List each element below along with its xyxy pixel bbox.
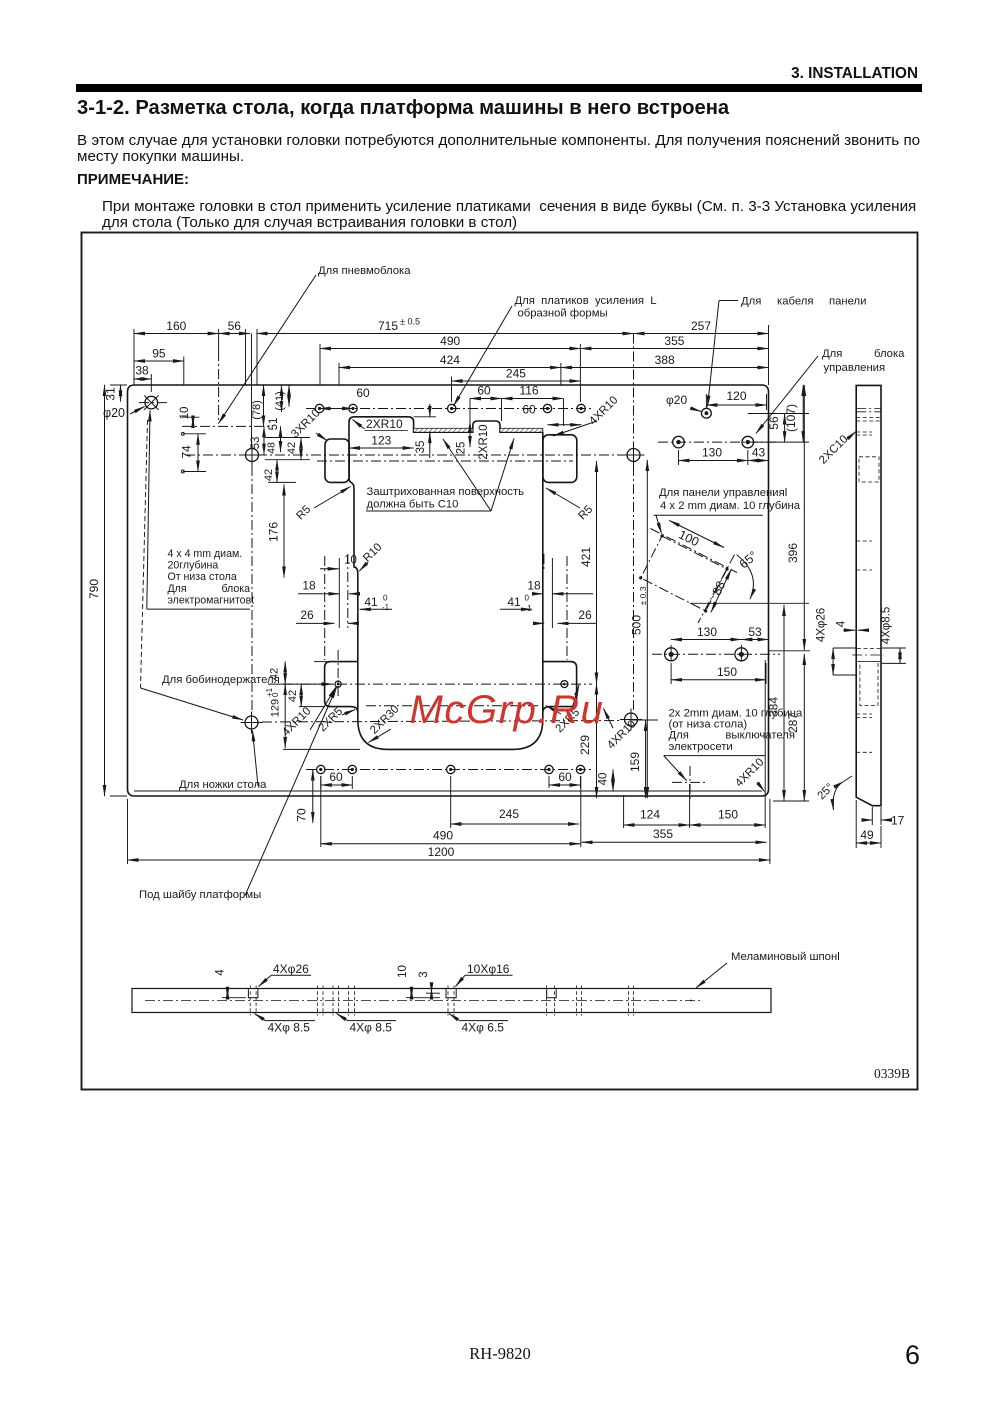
svg-text:электросети: электросети: [669, 741, 733, 753]
svg-text:электромагнитовt: электромагнитовt: [168, 594, 255, 606]
svg-text:123: 123: [371, 434, 391, 448]
svg-text:2XR10: 2XR10: [366, 417, 403, 431]
svg-text:42: 42: [263, 469, 275, 481]
svg-text:49: 49: [860, 828, 874, 842]
svg-text:129: 129: [270, 699, 282, 717]
svg-text:Для панели управленияl: Для панели управленияl: [659, 487, 787, 499]
svg-text:Для ножки стола: Для ножки стола: [179, 779, 267, 791]
svg-text:2XR5: 2XR5: [316, 705, 345, 734]
svg-text:355: 355: [653, 827, 673, 841]
svg-text:Для: Для: [822, 348, 842, 360]
svg-text:43: 43: [752, 446, 766, 460]
svg-text:± 0.3: ± 0.3: [638, 586, 648, 605]
svg-text:130: 130: [697, 625, 717, 639]
svg-text:0: 0: [383, 594, 388, 603]
svg-text:0: 0: [525, 594, 530, 603]
svg-text:355: 355: [664, 334, 684, 348]
svg-text:McGrp.Ru: McGrp.Ru: [409, 688, 604, 732]
svg-text:0: 0: [271, 692, 280, 697]
svg-text:Для платиков усиления L: Для платиков усиления L: [515, 295, 657, 307]
svg-text:4XR10: 4XR10: [733, 756, 766, 789]
svg-text:выключателя: выключателя: [725, 730, 795, 742]
svg-text:4Xφ8.5: 4Xφ8.5: [881, 607, 893, 645]
svg-text:4Xφ26: 4Xφ26: [816, 608, 828, 642]
svg-text:500: 500: [629, 615, 643, 635]
svg-text:60: 60: [329, 770, 343, 784]
svg-text:образной формы: образной формы: [518, 308, 608, 320]
svg-text:φ20: φ20: [666, 393, 687, 407]
svg-text:25: 25: [456, 442, 468, 455]
svg-text:(78): (78): [251, 400, 263, 420]
svg-text:245: 245: [499, 807, 519, 821]
svg-text:41: 41: [507, 595, 521, 609]
svg-text:100: 100: [676, 528, 701, 550]
svg-text:95: 95: [152, 347, 166, 361]
svg-text:Для: Для: [741, 296, 761, 308]
svg-text:287: 287: [786, 713, 800, 733]
svg-text:должна быть C10: должна быть C10: [367, 499, 459, 511]
svg-text:(107): (107): [784, 404, 798, 432]
svg-text:48: 48: [266, 442, 278, 454]
svg-text:35: 35: [415, 441, 427, 454]
svg-text:229: 229: [578, 735, 592, 755]
svg-text:10Xφ16: 10Xφ16: [467, 962, 510, 976]
svg-text:4Xφ 6.5: 4Xφ 6.5: [462, 1021, 505, 1035]
svg-text:φ20: φ20: [103, 406, 125, 420]
svg-text:53: 53: [748, 625, 762, 639]
svg-text:41: 41: [364, 595, 378, 609]
svg-text:Для: Для: [669, 730, 689, 742]
svg-text:116: 116: [519, 384, 538, 398]
svg-text:60: 60: [558, 770, 572, 784]
svg-text:От низа стола: От низа стола: [168, 571, 237, 583]
svg-text:124: 124: [640, 808, 660, 822]
svg-text:Под шайбу платформы: Под шайбу платформы: [139, 889, 261, 901]
svg-text:150: 150: [718, 808, 738, 822]
svg-text:18: 18: [527, 579, 541, 593]
svg-text:490: 490: [440, 334, 460, 348]
svg-text:56: 56: [228, 319, 242, 333]
svg-text:18: 18: [302, 579, 316, 593]
svg-text:56: 56: [767, 416, 781, 430]
svg-text:4Xφ26: 4Xφ26: [273, 962, 309, 976]
svg-text:Для: Для: [168, 583, 187, 595]
svg-text:490: 490: [433, 829, 453, 843]
svg-text:4: 4: [836, 620, 848, 627]
svg-text:4Xφ 8.5: 4Xφ 8.5: [350, 1021, 393, 1035]
svg-text:Для бобинодержателя: Для бобинодержателя: [162, 674, 280, 686]
svg-text:Для пневмоблока: Для пневмоблока: [318, 265, 411, 277]
svg-text:R5: R5: [294, 503, 313, 522]
svg-text:60: 60: [356, 386, 370, 400]
svg-text:4: 4: [215, 969, 227, 976]
svg-text:R10: R10: [361, 541, 384, 564]
svg-text:17: 17: [891, 814, 905, 828]
svg-text:Заштрихованная поверхность: Заштрихованная поверхность: [367, 486, 525, 498]
svg-text:10: 10: [344, 555, 357, 567]
svg-text:120: 120: [726, 389, 746, 403]
svg-text:790: 790: [87, 579, 101, 599]
svg-text:74: 74: [180, 445, 194, 459]
svg-text:396: 396: [786, 543, 800, 563]
svg-text:26: 26: [578, 608, 592, 622]
svg-text:26: 26: [300, 608, 314, 622]
svg-text:60: 60: [522, 403, 536, 417]
svg-text:панели: панели: [829, 296, 866, 308]
svg-text:388: 388: [655, 353, 675, 367]
svg-text:(41): (41): [274, 391, 286, 411]
svg-text:159: 159: [628, 752, 642, 772]
svg-text:± 0.5: ± 0.5: [400, 317, 420, 327]
svg-text:40: 40: [598, 773, 610, 786]
svg-text:-1: -1: [525, 604, 533, 613]
svg-text:-1: -1: [382, 603, 390, 612]
svg-text:42: 42: [287, 690, 299, 702]
svg-text:2XR30: 2XR30: [368, 703, 401, 736]
svg-text:2XC10: 2XC10: [817, 433, 850, 466]
svg-text:150: 150: [717, 665, 737, 679]
svg-text:3XR10: 3XR10: [289, 407, 322, 440]
svg-text:38: 38: [135, 364, 149, 378]
svg-text:715: 715: [378, 319, 398, 333]
svg-text:1200: 1200: [428, 845, 455, 859]
svg-text:блока: блока: [874, 348, 905, 360]
svg-text:4 x 4 mm диам.: 4 x 4 mm диам.: [168, 548, 243, 560]
svg-text:176: 176: [267, 522, 281, 542]
svg-text:257: 257: [691, 319, 711, 333]
svg-text:51: 51: [268, 418, 280, 431]
svg-text:65°: 65°: [737, 548, 760, 571]
svg-text:31: 31: [104, 387, 118, 401]
svg-text:130: 130: [702, 446, 722, 460]
svg-text:42: 42: [286, 442, 298, 454]
svg-text:70: 70: [295, 808, 309, 822]
svg-text:53: 53: [250, 437, 262, 450]
svg-text:блока: блока: [221, 583, 250, 595]
svg-text:10: 10: [397, 965, 409, 978]
svg-text:421: 421: [579, 547, 593, 567]
svg-text:2XR10: 2XR10: [478, 424, 490, 459]
svg-text:60: 60: [477, 384, 491, 398]
svg-text:управления: управления: [824, 362, 886, 374]
svg-text:42: 42: [269, 668, 281, 680]
svg-text:20глубина: 20глубина: [168, 560, 219, 572]
svg-text:(от низа стола): (от низа стола): [669, 719, 748, 731]
svg-text:245: 245: [506, 367, 526, 381]
svg-text:кабеля: кабеля: [777, 296, 813, 308]
svg-text:160: 160: [166, 319, 186, 333]
svg-text:0339B: 0339B: [874, 1066, 910, 1081]
svg-text:10: 10: [179, 407, 191, 420]
svg-text:Меламиновый шпонl: Меламиновый шпонl: [731, 951, 840, 963]
svg-text:R5: R5: [576, 503, 595, 522]
svg-text:384: 384: [767, 697, 781, 717]
svg-text:424: 424: [440, 353, 460, 367]
svg-text:4 x 2 mm диам. 10 глубина: 4 x 2 mm диам. 10 глубина: [660, 500, 801, 512]
svg-text:3: 3: [418, 971, 430, 977]
svg-text:4Xφ 8.5: 4Xφ 8.5: [268, 1021, 311, 1035]
